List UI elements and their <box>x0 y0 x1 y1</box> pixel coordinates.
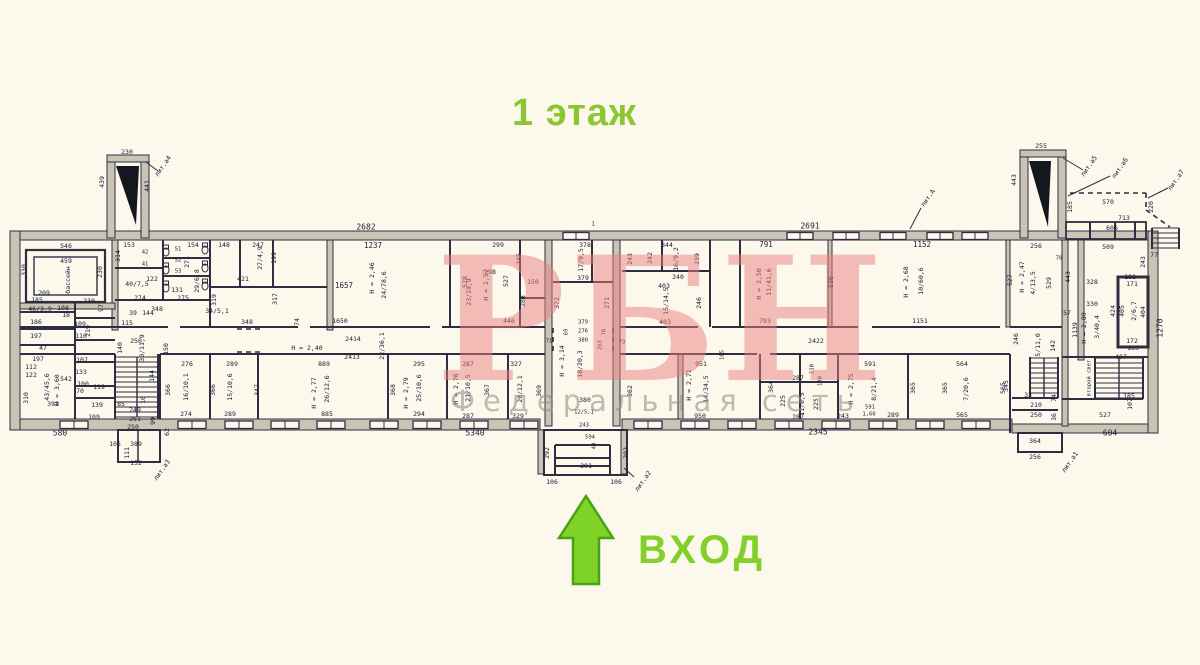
plan-label: лит.а7 <box>1166 168 1186 192</box>
plan-label: 106 <box>546 478 558 486</box>
plan-label: 150 <box>527 278 539 286</box>
plan-label: 372 <box>553 297 561 309</box>
plan-label: 152 <box>130 459 142 467</box>
plan-label: 365 <box>909 382 917 394</box>
plan-label: 594 <box>585 435 596 441</box>
plan-label: 274 <box>134 294 146 302</box>
plan-label: 1 <box>591 222 594 228</box>
plan-label: 1237 <box>364 241 382 250</box>
plan-label: 131 <box>171 286 183 294</box>
plan-label: 1139 <box>1071 322 1079 338</box>
plan-label: 240 <box>672 273 684 281</box>
plan-label: 327 <box>510 360 522 368</box>
plan-label: 40 <box>592 443 598 450</box>
plan-label: 1151 <box>912 317 928 325</box>
plan-label: 119 <box>93 383 105 391</box>
plan-label: 287 <box>792 413 804 421</box>
plan-label: 7/20,6 <box>962 377 970 401</box>
plan-label: 246 <box>1012 333 1020 345</box>
plan-label: 275 <box>177 294 189 302</box>
plan-label: 424 <box>1109 305 1117 317</box>
plan-label: Н = 2,46 <box>368 262 376 293</box>
plan-label: 34/5,1 <box>205 307 229 315</box>
plan-label: 580 <box>53 429 68 438</box>
plan-label: 243 <box>579 423 589 429</box>
plan-label: 144 <box>148 370 156 382</box>
plan-label: 22/36,1 <box>378 332 386 359</box>
plan-label: 43/45,6 <box>43 373 51 400</box>
plan-label: второй свет <box>1087 360 1093 396</box>
plan-label: 314 <box>114 250 122 262</box>
plan-label: 295 <box>413 360 425 368</box>
page-title: 1 этаж <box>512 92 637 135</box>
plan-label: 380 <box>578 338 588 344</box>
plan-label: 291 <box>580 462 592 470</box>
plan-label: 527 <box>1006 274 1014 286</box>
plan-label: 105 <box>720 350 726 360</box>
plan-label: 25/10,6 <box>415 374 423 401</box>
plan-label: 30/11,9 <box>138 334 146 361</box>
plan-label: 210 <box>1030 401 1042 409</box>
plan-label: 42 <box>142 250 149 256</box>
plan-label: 69 <box>564 329 570 336</box>
plan-label: 243 <box>626 253 634 265</box>
plan-label: бассейн <box>64 266 72 293</box>
plan-label: 289 <box>226 360 238 368</box>
plan-label: 317 <box>271 293 279 305</box>
plan-label: 74 <box>293 318 301 326</box>
plan-label: 185 <box>1066 201 1074 213</box>
plan-label: 271 <box>183 256 191 268</box>
plan-label: 564 <box>956 360 968 368</box>
plan-label: 197 <box>30 332 42 340</box>
plan-label: 570 <box>1102 198 1114 206</box>
plan-label: 85 <box>117 400 125 408</box>
plan-label: Н = 2,89 <box>1080 312 1088 343</box>
plan-label: Н = 2,76 <box>452 373 460 404</box>
plan-label: 1657 <box>335 281 353 290</box>
plan-label: 446 <box>503 317 515 325</box>
plan-label: 142 <box>1049 340 1057 352</box>
plan-label: 62 <box>163 428 171 436</box>
plan-label: 5340 <box>465 429 484 438</box>
plan-label: 57 <box>1063 309 1071 317</box>
plan-label: 421 <box>237 275 249 283</box>
plan-label: Н = 3,14 <box>558 345 566 376</box>
plan-label: 2/6,7 <box>1130 301 1138 321</box>
plan-label: 239 <box>693 253 701 265</box>
plan-label: 2422 <box>808 337 824 345</box>
plan-label: 78 <box>1056 256 1063 262</box>
plan-label: Н = 2,50 <box>755 268 763 299</box>
entrance-arrow-icon <box>559 496 613 584</box>
plan-label: 366 <box>164 384 172 396</box>
plan-label: 12/5,1 <box>574 410 594 416</box>
plan-label: 347 <box>253 384 261 396</box>
plan-label: 33 <box>1024 391 1032 399</box>
floor-plan-page: 26822691534023455806041270лит.а4лит.а5ли… <box>0 0 1200 665</box>
plan-label: 379 <box>577 274 589 282</box>
plan-label: 250 <box>1030 411 1042 419</box>
plan-label: 70 <box>76 387 84 395</box>
plan-label: 18/20,3 <box>576 350 584 377</box>
plan-label: 51 <box>175 247 182 253</box>
plan-label: Н = 2,68 <box>902 266 910 297</box>
plan-label: 366 <box>209 384 217 396</box>
plan-label: 99 <box>149 417 157 425</box>
plan-label: 18 <box>62 311 70 319</box>
plan-label: 542 <box>60 375 72 383</box>
plan-label: 20/12,1 <box>516 375 524 402</box>
plan-label: 287 <box>462 412 474 420</box>
plan-label: 115 <box>121 319 133 327</box>
plan-label: 274 <box>180 410 192 418</box>
plan-label: 163 <box>1127 344 1139 352</box>
plan-label: 283 <box>519 295 527 307</box>
plan-label: 10/60,6 <box>917 267 925 294</box>
plan-label: Н = 2,71 <box>685 369 693 400</box>
plan-label: 148 <box>218 241 230 249</box>
plan-label: 793 <box>759 317 771 325</box>
plan-label: 199 <box>270 252 278 264</box>
plan-label: 276 <box>181 360 193 368</box>
plan-label: 74 <box>1050 394 1058 402</box>
plan-label: 536 <box>827 276 835 288</box>
plan-label: 230 <box>121 148 133 156</box>
plan-label: 348 <box>241 318 253 326</box>
plan-label: 73 <box>619 340 626 346</box>
plan-label: 292 <box>543 447 551 459</box>
plan-label: 365 <box>941 382 949 394</box>
plan-label: 47 <box>39 344 47 352</box>
plan-label: 1152 <box>913 240 931 249</box>
plan-label: 14/34,5 <box>702 375 710 402</box>
plan-label: 439 <box>98 176 106 188</box>
plan-label: 294 <box>413 410 425 418</box>
plan-label: 527 <box>502 275 510 287</box>
plan-label: 24/78,6 <box>380 271 388 298</box>
plan-label: 52 <box>175 258 182 264</box>
plan-label: 26/12,6 <box>323 375 331 402</box>
plan-label: 105 <box>109 440 121 448</box>
plan-label: 591 <box>864 360 876 368</box>
plan-label: 328 <box>1086 278 1098 286</box>
plan-label: 287 <box>792 374 804 382</box>
plan-label: 271 <box>603 297 611 309</box>
plan-label: 53 <box>175 269 182 275</box>
plan-label: 404 <box>1139 306 1147 318</box>
plan-label: 225 <box>779 395 787 407</box>
plan-label: 287 <box>462 360 474 368</box>
plan-label: 2345 <box>808 428 827 437</box>
plan-label: Н = 2,77 <box>310 377 318 408</box>
plan-label: 459 <box>60 257 72 265</box>
plan-label: 367 <box>483 384 491 396</box>
plan-label: 885 <box>321 410 333 418</box>
plan-label: лит.а2 <box>633 469 653 493</box>
plan-label: 443 <box>1064 271 1072 283</box>
plan-label: 364 <box>1029 437 1041 445</box>
plan-label: лит.А <box>919 188 937 209</box>
plan-label: 441 <box>143 180 151 192</box>
plan-label: 107 <box>1126 398 1134 410</box>
plan-label: 392 <box>47 400 59 408</box>
plan-label: 791 <box>759 240 773 249</box>
plan-label: 951 <box>695 360 707 368</box>
plan-label: 77 <box>1150 251 1158 259</box>
plan-label: 319 <box>210 294 218 306</box>
plan-label: 250 <box>127 423 139 431</box>
plan-label: 2414 <box>345 335 361 343</box>
plan-label: 379 <box>578 320 588 326</box>
plan-label: 256 <box>1030 242 1042 250</box>
plan-label: 299 <box>492 241 504 249</box>
plan-label: 5/11,0 <box>1034 333 1042 357</box>
plan-label: 889 <box>318 360 330 368</box>
plan-label: 565 <box>999 382 1007 394</box>
plan-label: Н = 2,75 <box>847 373 855 404</box>
plan-label: 230 <box>83 297 95 305</box>
plan-label: лит.а6 <box>1110 156 1130 180</box>
plan-label: 71 <box>546 339 553 345</box>
plan-label: 150 <box>162 343 170 355</box>
plan-label: 2691 <box>800 222 819 231</box>
plan-label: 130 <box>818 376 824 386</box>
plan-label: 41 <box>142 262 149 268</box>
plan-label: лит.а4 <box>153 154 173 178</box>
plan-label: 21/10,5 <box>464 374 472 401</box>
plan-label: 107 <box>76 356 88 364</box>
plan-label: 1,60 <box>862 412 875 418</box>
plan-label: 197 <box>32 355 44 363</box>
plan-label: 16/9,2 <box>672 247 680 271</box>
plan-label: 251 <box>129 415 141 423</box>
plan-label: 950 <box>694 412 706 420</box>
plan-label: 330 <box>20 264 28 276</box>
plan-label: 591 <box>865 405 875 411</box>
plan-label: 368 <box>389 384 397 396</box>
plan-label: 230 <box>96 266 104 278</box>
plan-label: 36 <box>1050 413 1058 421</box>
plan-label: Н = 2,79 <box>402 377 410 408</box>
plan-label: 380 <box>579 396 591 404</box>
plan-label: 389 <box>130 440 142 448</box>
plan-label: лит.а1 <box>1060 450 1080 474</box>
plan-label: 110 <box>75 332 87 340</box>
plan-label: 139 <box>91 401 103 409</box>
plan-label: 713 <box>1118 214 1130 222</box>
plan-label: 133 <box>75 368 87 376</box>
plan-label: 527 <box>1099 411 1111 419</box>
plan-label: лит.а5 <box>1079 154 1099 178</box>
plan-label: 1270 <box>1156 318 1165 337</box>
plan-label: 249 <box>129 406 141 414</box>
plan-label: 140 <box>116 342 124 354</box>
plan-label: 364 <box>767 381 775 393</box>
plan-label: 276 <box>578 329 588 335</box>
plan-label: 15/10,6 <box>226 373 234 400</box>
plan-label: Н = 2,57 <box>482 269 490 300</box>
plan-label: 39 <box>129 309 137 317</box>
plan-label: 10 <box>139 396 147 404</box>
plan-label: Н = 2,40 <box>291 344 322 352</box>
plan-label: 109 <box>88 413 100 421</box>
plan-label: 405 <box>1118 305 1126 317</box>
plan-label: 565 <box>956 411 968 419</box>
plan-label: 153 <box>123 241 135 249</box>
plan-label: 220 <box>1147 201 1155 213</box>
plan-label: 97 <box>97 304 105 312</box>
entrance-label: ВХОД <box>638 528 766 573</box>
plan-label: 292 <box>622 447 630 459</box>
plan-label: 443 <box>1010 174 1018 186</box>
plan-label: 362 <box>626 385 634 397</box>
plan-label: 255 <box>1035 142 1047 150</box>
plan-label: 29/6,8 <box>193 269 201 293</box>
plan-label: 606 <box>1106 224 1118 232</box>
plan-label: 154 <box>187 241 199 249</box>
plan-label: 46/3,9 <box>28 305 52 313</box>
plan-label: 407 <box>1115 353 1127 361</box>
plan-label: 243 <box>1139 256 1147 268</box>
plan-label: 245 <box>515 253 523 265</box>
plan-label: 225 <box>812 398 820 410</box>
plan-label: 289 <box>887 411 899 419</box>
plan-label: 242 <box>646 252 654 264</box>
plan-label: Н = 2,47 <box>1018 261 1026 292</box>
plan-label: 246 <box>695 297 703 309</box>
plan-label: 111 <box>123 447 131 459</box>
plan-label: 330 <box>1086 300 1098 308</box>
plan-label: 263 <box>598 340 604 350</box>
plan-label: 310 <box>22 392 30 404</box>
plan-label: 604 <box>1103 429 1118 438</box>
plan-label: 106 <box>610 478 622 486</box>
plan-label: 378 <box>579 241 591 249</box>
plan-label: 171 <box>1126 280 1138 288</box>
plan-label: 289 <box>224 410 236 418</box>
plan-label: 16/10,1 <box>182 373 190 400</box>
plan-label: 3/40,4 <box>1093 315 1101 339</box>
plan-label: 2682 <box>356 223 375 232</box>
plan-label: 4/13,5 <box>1029 271 1037 295</box>
plan-label: 122 <box>146 275 158 283</box>
plan-label: 186 <box>30 318 42 326</box>
plan-label: 144 <box>142 309 154 317</box>
plan-label: 529 <box>1045 277 1053 289</box>
plan-label: 15/14,5 <box>662 287 670 314</box>
plan-label: 256 <box>1029 453 1041 461</box>
plan-label: 27/4,9 <box>256 246 264 270</box>
plan-label: 2413 <box>344 353 360 361</box>
plan-label: 17/9,5 <box>577 248 585 272</box>
plan-label: 1650 <box>332 317 348 325</box>
plan-label: 528 <box>461 276 469 288</box>
plan-label: 369 <box>535 385 543 397</box>
plan-label: 70 <box>602 329 608 336</box>
plan-label: 546 <box>60 242 72 250</box>
plan-label: 11/41,6 <box>765 268 773 295</box>
plan-label: 329 <box>512 412 524 420</box>
plan-label: 112 <box>25 363 37 371</box>
plan-label: 243 <box>837 412 849 420</box>
plan-label: 122 <box>25 371 37 379</box>
plan-label: 8/21,4 <box>870 377 878 401</box>
plan-label: 110 <box>810 364 816 374</box>
plan-label: 509 <box>1102 243 1114 251</box>
plan-label: 185 <box>31 296 43 304</box>
plan-label: 403 <box>659 318 671 326</box>
